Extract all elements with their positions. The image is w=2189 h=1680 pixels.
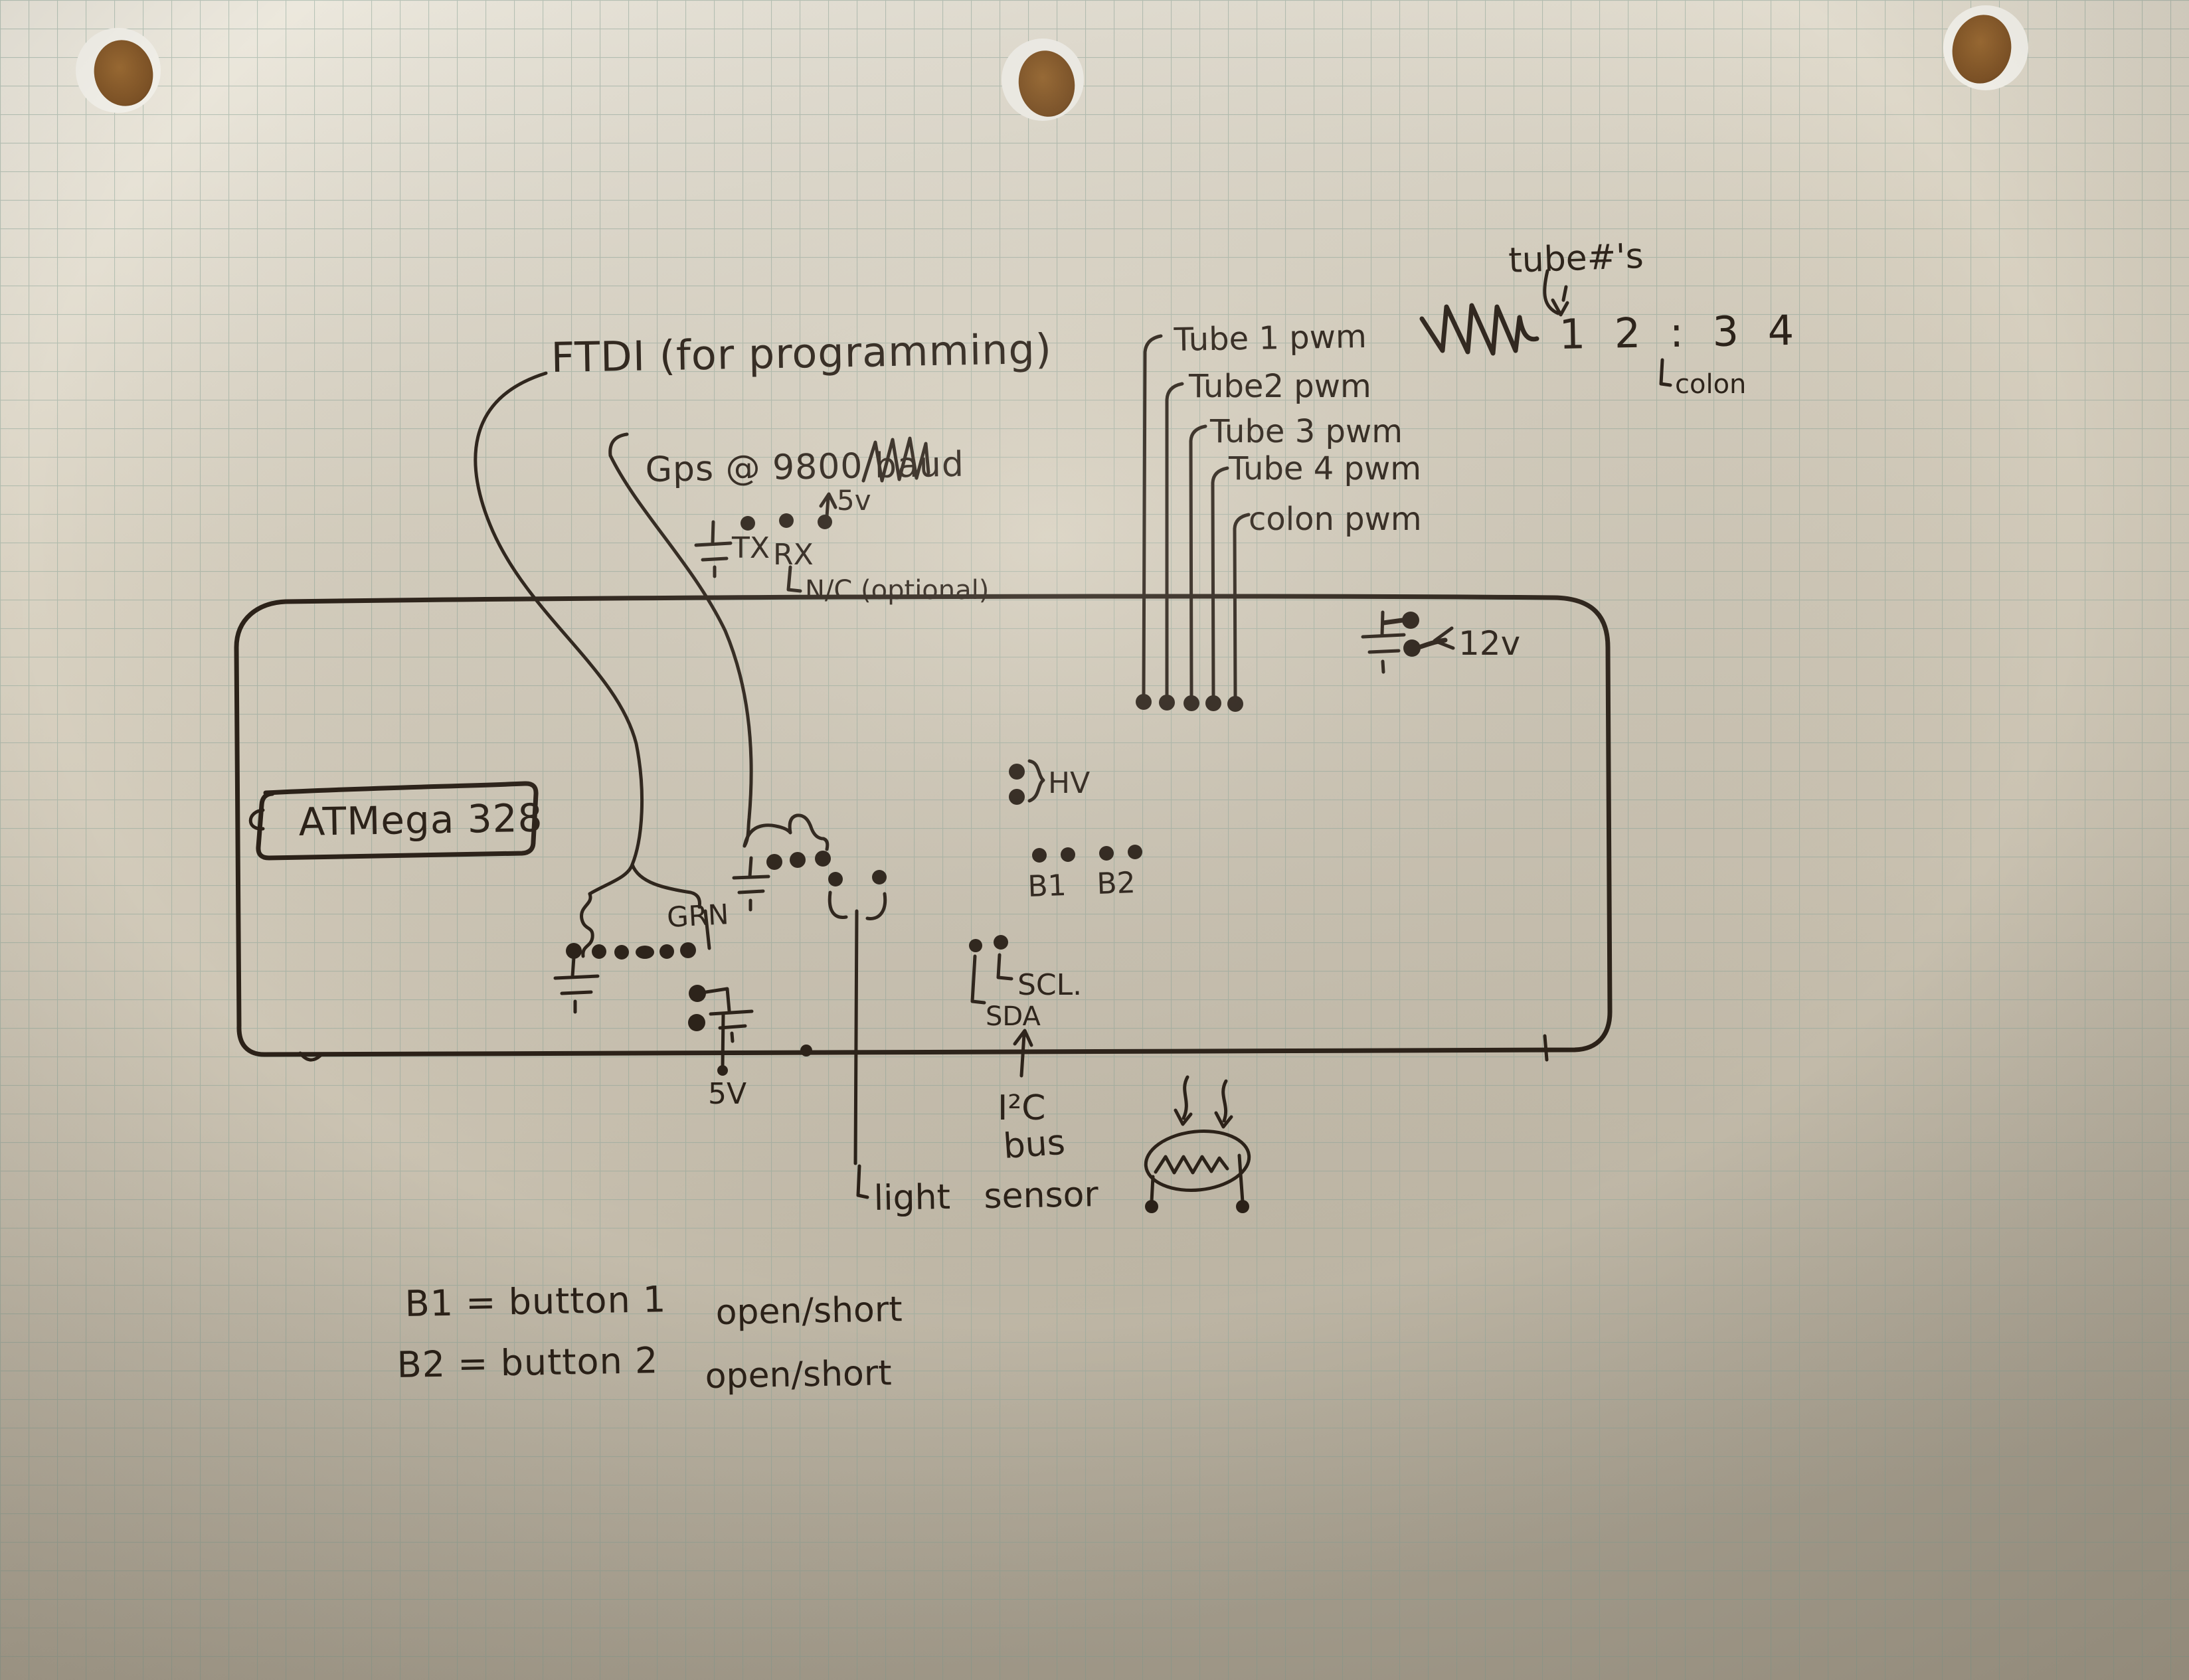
pwm-label-colon: colon pwm (1249, 501, 1422, 538)
light-sensor-pin-1 (828, 872, 843, 886)
pwm-dot-tube3 (1183, 695, 1199, 711)
b2-label: B2 (1096, 866, 1136, 901)
i2c-pin-sda (969, 939, 982, 952)
legend-row2-label: B2 = button 2 (396, 1339, 659, 1386)
punch-hole-left (76, 28, 161, 113)
photo-of-schematic: FTDI (for programming) Gps @ 9800 baud 5… (0, 0, 2189, 1680)
tube-numbers-title: tube#'s (1508, 236, 1644, 281)
bus-junction-dot (800, 1045, 812, 1056)
supply-5v-pin-1 (689, 985, 706, 1002)
hv-pin-2 (1009, 789, 1025, 805)
ftdi-header-pin-3 (614, 945, 629, 960)
gps-nc-label: N/C (optional) (805, 575, 989, 606)
supply-5v-label: 5V (708, 1077, 746, 1111)
pwm-dot-tube2 (1159, 695, 1175, 711)
gps-pin-rx (779, 513, 794, 528)
b1-pin-2 (1061, 847, 1075, 862)
i2c-label-line1: I²C (998, 1088, 1046, 1128)
supply-12v-label: 12v (1458, 624, 1520, 663)
tube-numbers: 1 2 : 3 4 (1559, 306, 1802, 359)
supply-12v-pin-1 (1402, 612, 1419, 629)
supply-12v-wire-1 (1383, 620, 1403, 623)
gps-tx-label: TX (731, 531, 770, 565)
ftdi-header-pin-4 (636, 946, 654, 959)
bus-tick (1545, 1036, 1547, 1060)
legend-row1-label: B1 = button 1 (404, 1278, 667, 1325)
pwm-dot-colon (1227, 696, 1243, 712)
grn-label: GRN (666, 898, 730, 934)
hv-label: HV (1048, 766, 1090, 800)
gps-header-pin-2 (790, 852, 806, 868)
pwm-dot-tube1 (1136, 694, 1152, 710)
gps-label: Gps @ 9800 baud (645, 445, 964, 490)
gps-header-pin-3 (815, 851, 831, 867)
ftdi-header-pin-5 (659, 944, 674, 959)
i2c-pin-scl (994, 935, 1008, 950)
ftdi-header-pin-2 (592, 944, 606, 959)
supply-5v-drop-wire (723, 1015, 723, 1068)
ldr-leg-left (1152, 1177, 1153, 1202)
gps-header-pin-1 (766, 854, 782, 870)
pwm-dot-tube4 (1205, 695, 1221, 711)
light-sensor-wire (855, 911, 857, 1163)
legend-row2-note: open/short (705, 1353, 892, 1396)
gps-rx-label: RX (773, 538, 814, 572)
b1-pin-1 (1032, 848, 1047, 863)
mcu-label: ATMega 328 (298, 796, 543, 845)
scl-label: SCL. (1017, 968, 1082, 1002)
pwm-label-tube4: Tube 4 pwm (1228, 450, 1421, 487)
legend-row1-note: open/short (715, 1290, 903, 1333)
gps-pin-5v (818, 515, 832, 529)
light-sensor-pin-2 (872, 870, 887, 884)
i2c-label-line2: bus (1002, 1123, 1067, 1167)
hv-pin-1 (1009, 764, 1025, 780)
supply-5v-wire-end (717, 1065, 728, 1076)
light-sensor-label: light sensor (873, 1175, 1099, 1218)
ftdi-header-pin-1 (566, 943, 582, 959)
b2-pin-2 (1128, 845, 1142, 859)
punch-hole-middle (1002, 39, 1084, 122)
gps-5v-label: 5v (837, 484, 871, 517)
b1-label: B1 (1027, 869, 1067, 904)
supply-5v-pin-2 (688, 1014, 705, 1031)
colon-note-label: colon (1675, 369, 1746, 400)
schematic-canvas: FTDI (for programming) Gps @ 9800 baud 5… (0, 0, 2189, 1680)
supply-12v-pin-2 (1403, 639, 1421, 657)
pwm-label-tube3: Tube 3 pwm (1209, 413, 1403, 450)
b2-pin-1 (1099, 846, 1114, 861)
gps-pin-tx (741, 516, 755, 531)
ftdi-label: FTDI (for programming) (551, 325, 1053, 382)
punch-hole-right (1943, 5, 2028, 90)
sda-label: SDA (986, 1001, 1041, 1032)
ftdi-header-pin-6 (680, 942, 696, 958)
pwm-label-tube2: Tube2 pwm (1188, 368, 1371, 405)
pwm-label-tube1: Tube 1 pwm (1173, 318, 1367, 359)
